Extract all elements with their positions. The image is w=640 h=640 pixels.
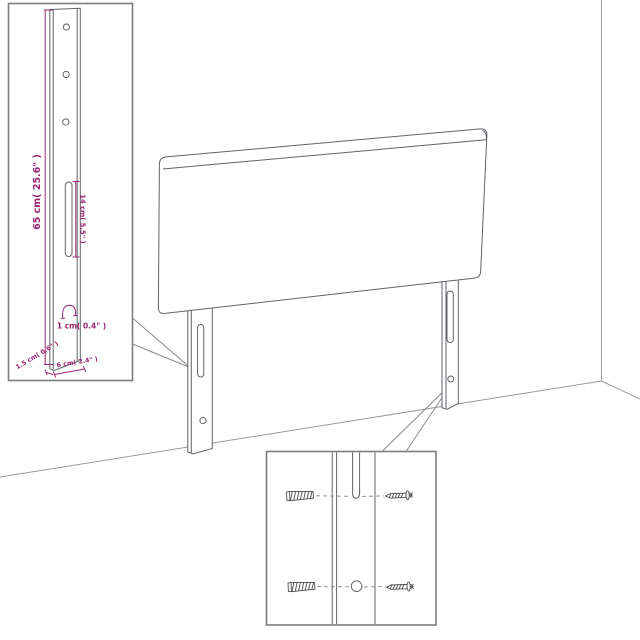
headboard-right-leg xyxy=(442,276,458,409)
height-dimension-label: 65 cm( 25.6" ) xyxy=(32,154,43,230)
leader-lines xyxy=(133,318,452,452)
hardware-detail-inset xyxy=(267,452,437,626)
slot-dimension-label: 14 cm( 5.5" ) xyxy=(79,194,87,243)
hook-dimension-label: 1 cm( 0.4" ) xyxy=(57,322,106,331)
headboard-panel xyxy=(158,129,487,314)
headboard-diagram: 65 cm( 25.6" ) 14 cm( 5.5" ) 1 cm( 0.4" … xyxy=(0,0,640,640)
leg-detail-inset: 65 cm( 25.6" ) 14 cm( 5.5" ) 1 cm( 0.4" … xyxy=(9,4,133,381)
headboard-left-leg xyxy=(188,300,213,454)
diagram-canvas: 65 cm( 25.6" ) 14 cm( 5.5" ) 1 cm( 0.4" … xyxy=(0,0,640,640)
